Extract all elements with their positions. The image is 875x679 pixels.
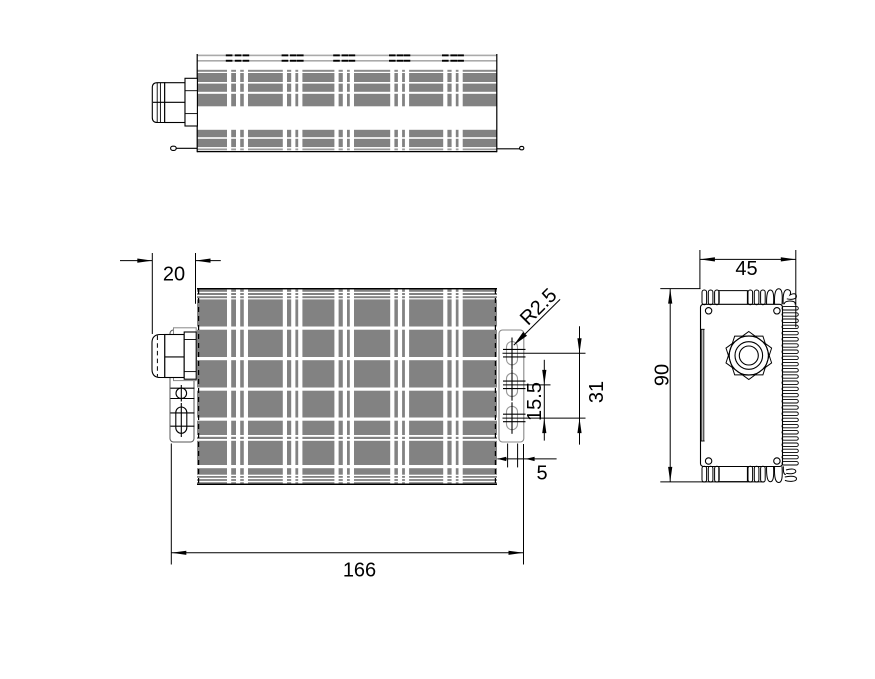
svg-text:15.5: 15.5 — [524, 382, 546, 421]
svg-text:20: 20 — [163, 264, 185, 286]
svg-text:5: 5 — [536, 463, 547, 485]
svg-text:166: 166 — [343, 560, 376, 582]
svg-text:31: 31 — [586, 381, 608, 403]
svg-text:90: 90 — [652, 364, 674, 386]
svg-text:45: 45 — [735, 258, 757, 280]
